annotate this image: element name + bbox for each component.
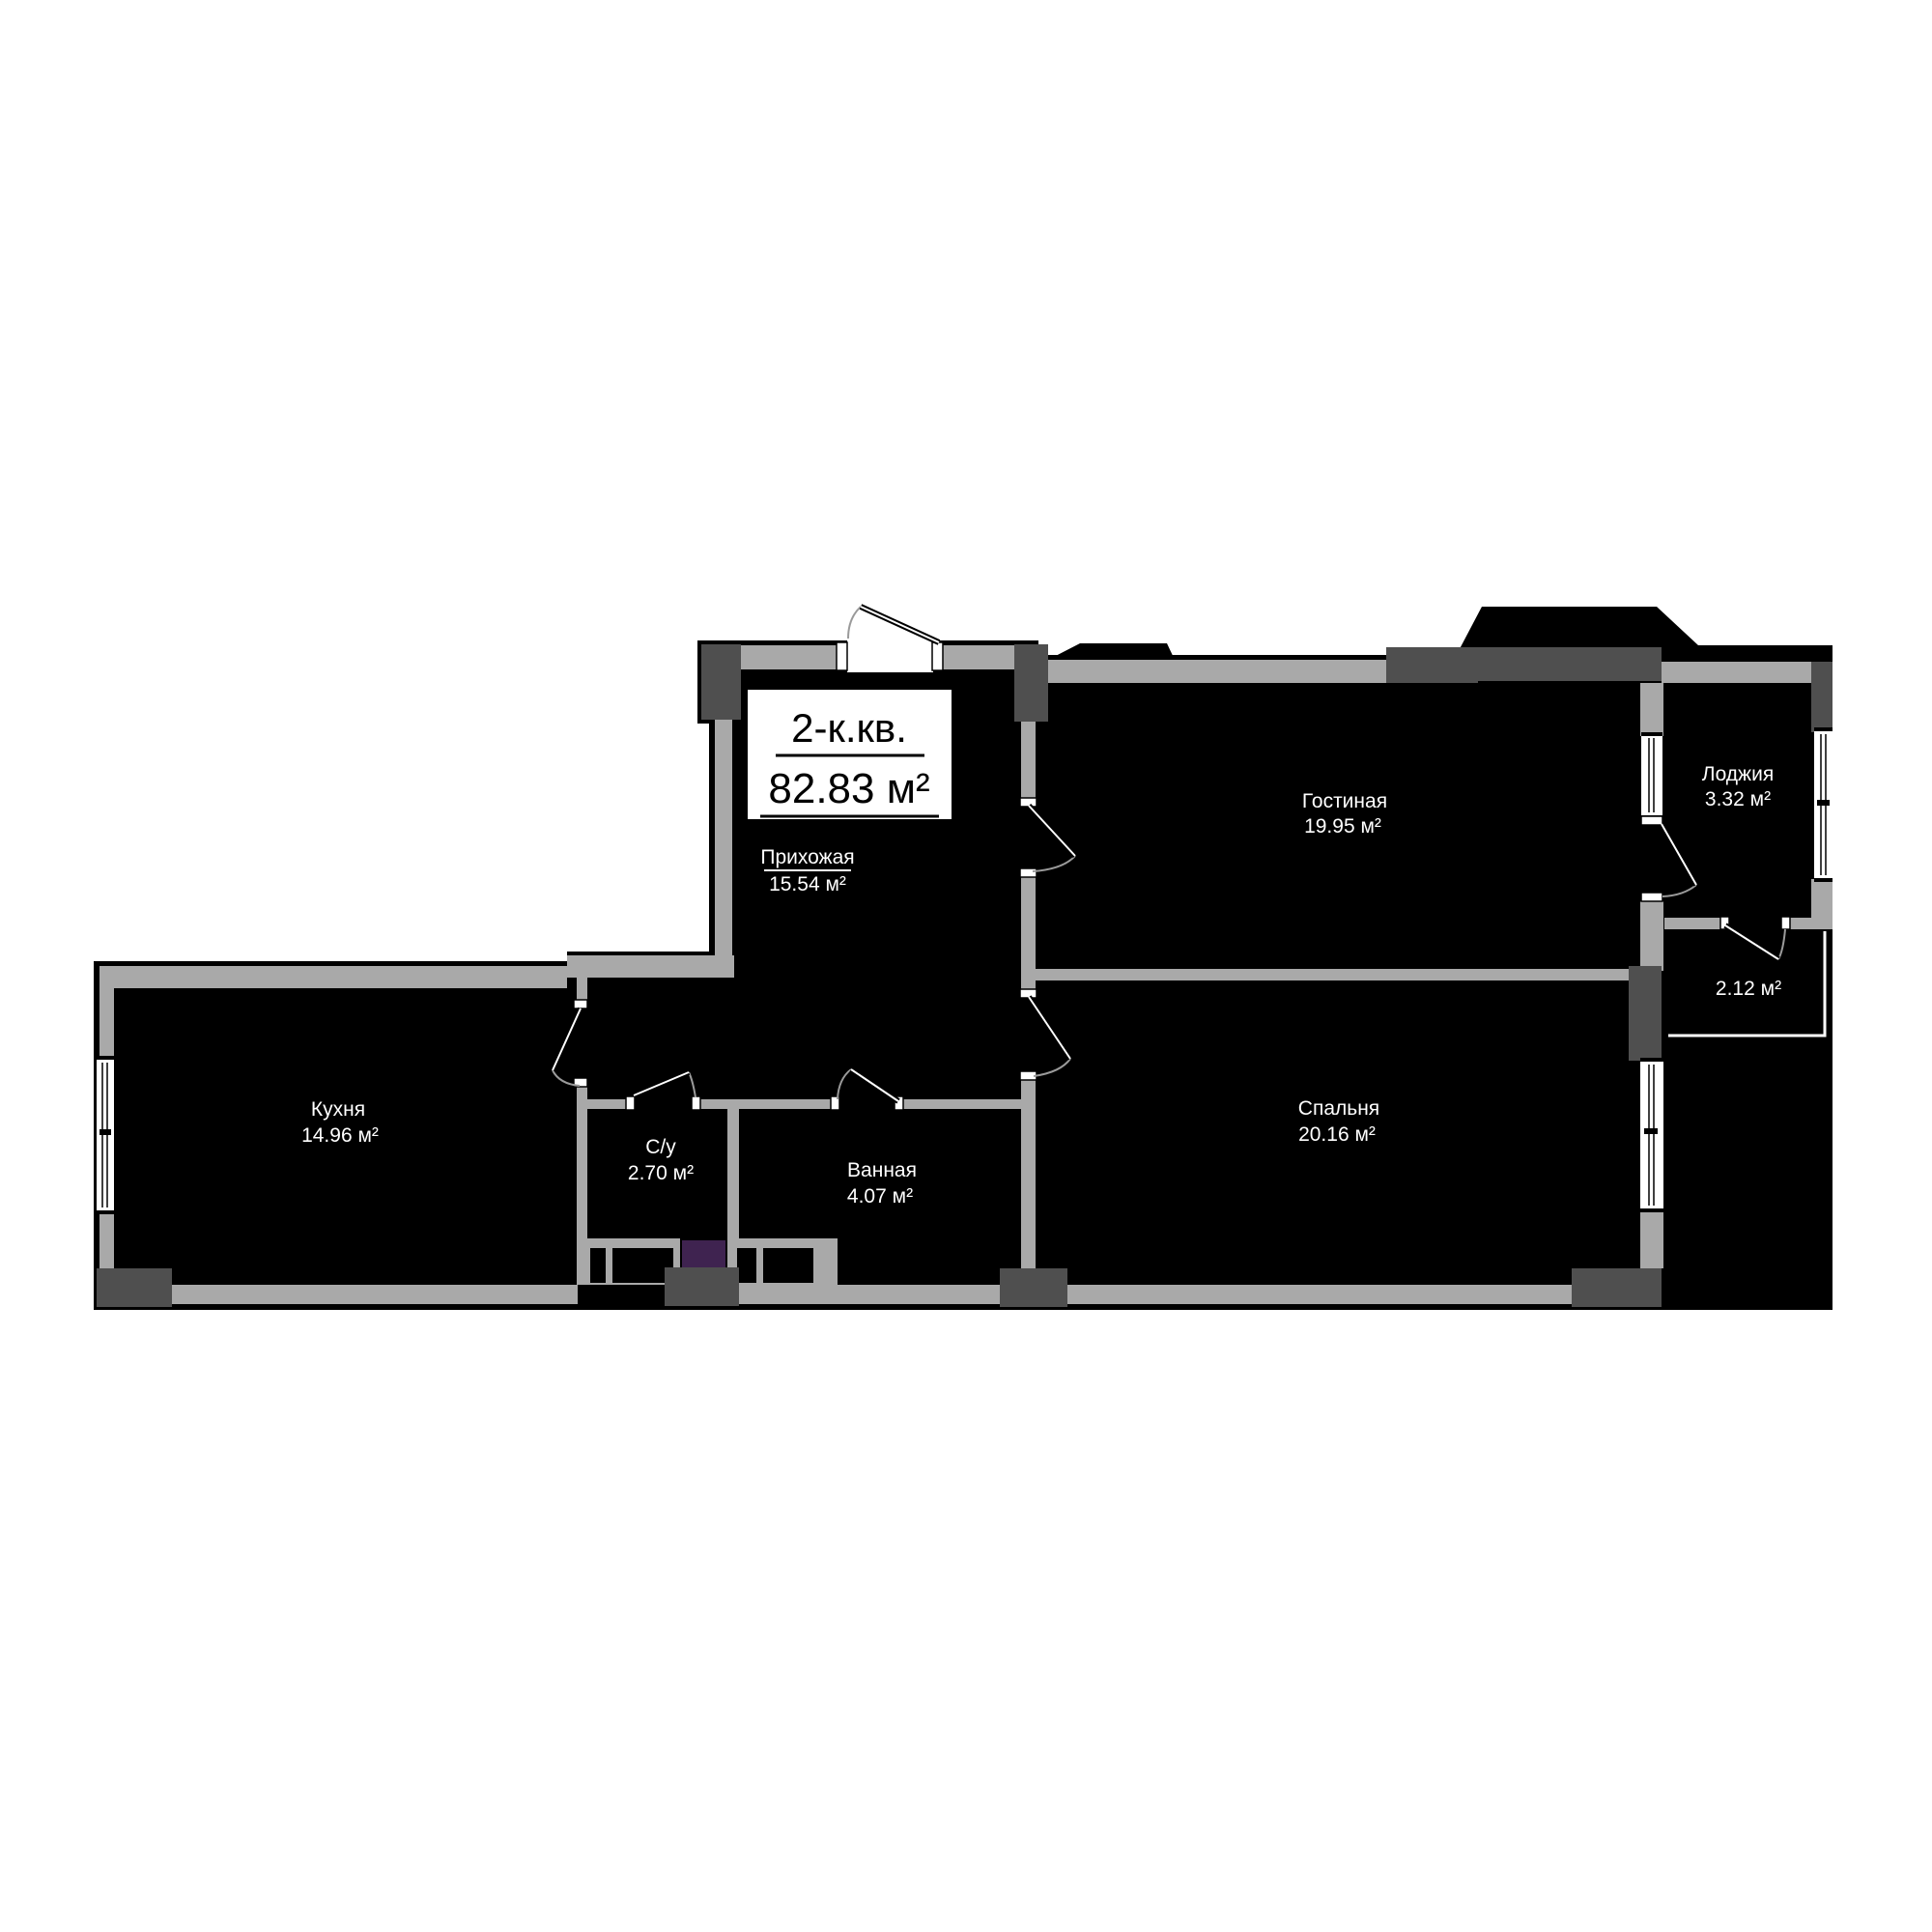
floor-base [94,607,1833,1310]
wall-loggia-divider-upper [1640,683,1663,736]
wall-loggia-right-lower [1811,879,1833,929]
wall-top-dark-2 [1478,647,1662,681]
wall-bottom-bedroom [1067,1285,1572,1304]
living-floor [1038,655,1468,1310]
loggia-area: 3.32 м² [1705,788,1771,810]
wall-loggia-bottom-1 [1664,918,1720,929]
wall-wetrooms-top-2 [700,1099,831,1109]
column-loggia-corner [1811,662,1833,732]
bathroom-area: 4.07 м² [847,1185,913,1207]
wall-wc-bath-divider [727,1109,739,1238]
wall-top-dark-1 [1386,647,1478,683]
wall-bottom-left [172,1285,578,1304]
wall-bottom-center [731,1285,1000,1304]
loggia-window [1814,727,1833,882]
apartment-area-label: 82.83 м² [768,765,929,812]
purple-duct-block [681,1239,726,1268]
wall-hall-partition-3 [1021,1080,1036,1285]
column-bottom-right [1572,1268,1662,1307]
column-bottom-left [97,1268,172,1307]
shaft-hole [737,1248,756,1283]
kitchen-area: 14.96 м² [301,1124,379,1147]
wall-living-top [1048,660,1386,683]
living-label: Гостиная [1302,790,1387,812]
bedroom-window [1640,1058,1663,1212]
kitchen-window [97,1056,114,1214]
hallway-label: Прихожая [760,846,854,868]
balcony-area: 2.12 м² [1716,978,1781,1000]
wall-loggia-bottom-2 [1790,918,1811,929]
column-bedroom-window [1629,966,1662,1061]
wall-wetrooms-top-1 [587,1099,626,1109]
title-box: 2-к.кв. 82.83 м² [746,688,953,821]
floor-plan-page: Прихожая 15.54 м² Гостиная 19.95 м² Лодж… [0,0,1932,1932]
living-area: 19.95 м² [1304,815,1381,838]
wall-kitchen-door-lower [577,1080,587,1285]
wall-corridor-top [567,955,734,978]
wall-bedroom-right-lower [1640,1209,1663,1268]
shaft-hole [612,1248,673,1283]
bedroom-label: Спальня [1298,1097,1379,1120]
entrance-door [837,607,943,672]
wall-entrance-top-left [739,645,843,669]
wall-kitchen-left-upper [99,988,114,1058]
bathroom-label: Ванная [847,1159,917,1181]
wc-area: 2.70 м² [628,1162,694,1184]
wall-living-bedroom [1036,969,1640,980]
wc-label: С/у [645,1136,676,1158]
wall-wetrooms-top-3 [903,1099,1021,1109]
loggia-label: Лоджия [1702,763,1774,785]
column-bottom-bath [1000,1268,1067,1307]
bedroom-area: 20.16 м² [1298,1123,1376,1146]
shaft-hole [590,1248,606,1283]
kitchen-label: Кухня [311,1098,365,1121]
wall-hall-partition-1 [1021,722,1036,799]
column-bottom-wetrooms [665,1267,739,1306]
roof-silhouette-left [1048,643,1175,660]
apartment-type-label: 2-к.кв. [791,705,907,751]
wall-loggia-top [1662,662,1811,683]
hallway-area: 15.54 м² [769,873,846,895]
wall-kitchen-top [99,966,567,988]
wall-kitchen-door-upper [577,978,587,1001]
floor-plan-svg: Прихожая 15.54 м² Гостиная 19.95 м² Лодж… [0,0,1932,1932]
wall-hall-partition-2 [1021,877,1036,989]
wall-loggia-divider-lower [1640,901,1663,971]
column-hall-living [1014,644,1048,722]
shaft-hole [763,1248,813,1283]
loggia-door-window [1641,732,1662,819]
column-entrance [701,644,741,720]
